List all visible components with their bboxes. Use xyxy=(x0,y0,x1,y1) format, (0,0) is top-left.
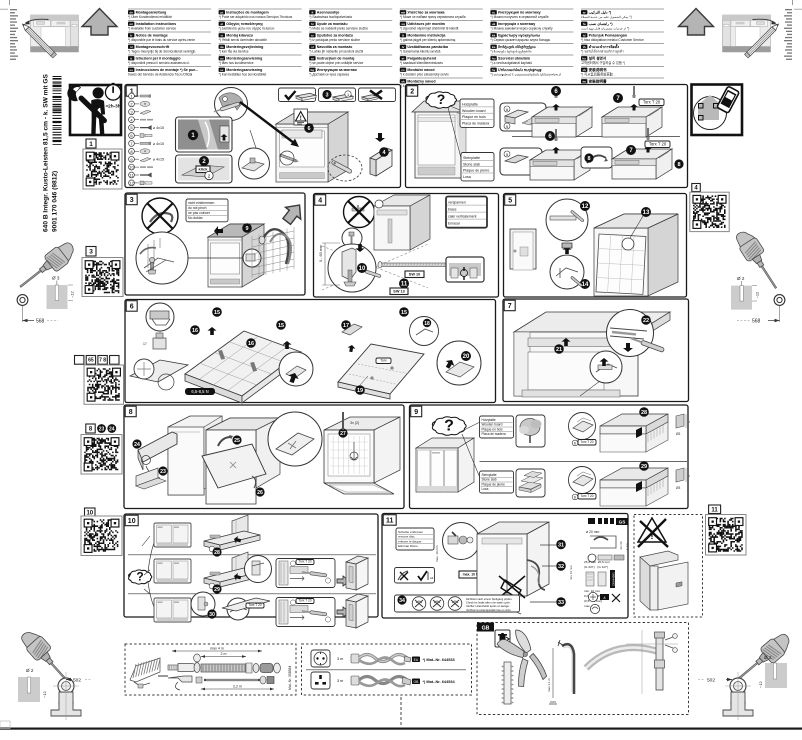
svg-text:از خدمات مشتریان قابل تهیه است: از خدمات مشتریان قابل تهیه است *) xyxy=(581,27,629,31)
svg-text:25,4 mm 20,6 mm: 25,4 mm 20,6 mm xyxy=(584,560,610,564)
svg-text:Holzplatte: Holzplatte xyxy=(482,418,496,422)
svg-text:kk: kk xyxy=(492,34,496,38)
svg-text:3: 3 xyxy=(325,93,328,99)
svg-text:21: 21 xyxy=(556,347,562,353)
svg-text:h: h xyxy=(688,420,690,424)
svg-text:*) a vevőszolgálatnál kapható: *) a vevőszolgálatnál kapható xyxy=(490,61,532,65)
svg-text:do not pinch: do not pinch xyxy=(188,206,207,210)
svg-text:No doblar: No doblar xyxy=(188,216,204,220)
svg-text:65: 65 xyxy=(88,358,94,364)
svg-text:et: et xyxy=(402,57,405,61)
svg-text:Istruzioni per il montaggio: Istruzioni per il montaggio xyxy=(136,57,182,61)
svg-text:nicht einklemmen: nicht einklemmen xyxy=(188,201,214,205)
svg-text:Stone slab: Stone slab xyxy=(482,478,497,482)
svg-text:16: 16 xyxy=(192,328,198,334)
svg-text:30: 30 xyxy=(209,612,215,618)
svg-text:3 m: 3 m xyxy=(337,657,343,661)
svg-text:8: 8 xyxy=(587,156,590,162)
svg-text:24: 24 xyxy=(134,442,140,448)
svg-text:Instruções de montagem: Instruções de montagem xyxy=(226,11,269,15)
svg-text:cs: cs xyxy=(401,68,405,72)
svg-text:5: 5 xyxy=(506,125,508,129)
svg-text:?: ? xyxy=(444,418,454,435)
svg-text:9: 9 xyxy=(245,226,248,232)
svg-text:*) Pode ser adquirido nos noss: *) Pode ser adquirido nos nossos Serviço… xyxy=(219,15,293,19)
svg-text:bg: bg xyxy=(311,68,315,72)
svg-text:ko: ko xyxy=(582,57,586,61)
svg-text:安裝說明書: 安裝說明書 xyxy=(589,79,607,84)
svg-text:1: 1 xyxy=(347,93,349,97)
svg-text:*) Доставя се чрез сервиза: *) Доставя се чрез сервиза xyxy=(309,73,349,77)
svg-text:4: 4 xyxy=(318,198,322,205)
svg-text:22: 22 xyxy=(643,318,649,324)
svg-text:sq: sq xyxy=(401,22,405,26)
svg-text:9001 170 046 (9812): 9001 170 046 (9812) xyxy=(52,171,59,232)
svg-text:mk: mk xyxy=(401,11,406,15)
svg-text:*) Можно получить в сервисной: *) Можно получить в сервисной службе xyxy=(490,15,549,19)
svg-text:enlever le disque: enlever le disque xyxy=(398,539,422,543)
svg-text:Plaque de pierre: Plaque de pierre xyxy=(463,169,489,173)
svg-text:31: 31 xyxy=(558,543,564,549)
svg-text:en: en xyxy=(129,22,133,26)
svg-text:Szerelési útmutató: Szerelési útmutató xyxy=(498,57,531,61)
svg-text:Holzplatte: Holzplatte xyxy=(462,103,478,107)
svg-text:7: 7 xyxy=(508,303,512,310)
svg-text:th: th xyxy=(583,45,586,49)
svg-text:lt: lt xyxy=(402,34,404,38)
svg-text:12: 12 xyxy=(582,204,589,210)
svg-text:12: 12 xyxy=(129,181,134,186)
svg-text:*) saadaval klienditeeninduses: *) saadaval klienditeeninduses xyxy=(400,61,443,65)
svg-text:Wooden board: Wooden board xyxy=(482,423,503,427)
svg-text:de: de xyxy=(129,11,133,15)
svg-text:hy: hy xyxy=(492,68,496,72)
svg-text:⌀ 4x15: ⌀ 4x15 xyxy=(153,126,164,130)
svg-text:~12: ~12 xyxy=(755,291,760,299)
svg-text:Ø3: Ø3 xyxy=(676,432,680,436)
svg-text:sl: sl xyxy=(311,45,314,49)
svg-text:Plaque en bois: Plaque en bois xyxy=(462,115,486,119)
svg-text:Stone slab: Stone slab xyxy=(463,162,480,166)
svg-text:sv: sv xyxy=(220,68,224,72)
svg-text:*) fåes hos kundeservice: *) fåes hos kundeservice xyxy=(219,61,254,65)
svg-text:Упатство за монтажа: Упатство за монтажа xyxy=(407,11,445,15)
svg-text:Verificar la estanqueidad tras: Verificar la estanqueidad tras un ciclo. xyxy=(466,608,512,612)
svg-text:Құрастыру нұсқаулығы: Құрастыру нұсқаулығы xyxy=(498,34,540,38)
svg-text:sk: sk xyxy=(401,80,405,84)
svg-text:Instrucciones de montaje *) Se: Instrucciones de montaje *) Se pue... xyxy=(136,68,199,72)
svg-text:Navodila za montažo: Navodila za montažo xyxy=(317,45,353,49)
svg-text:Steinplatte: Steinplatte xyxy=(463,156,480,160)
svg-text:Mat.-Nr. 358584: Mat.-Nr. 358584 xyxy=(288,666,292,690)
svg-text:el: el xyxy=(221,22,224,26)
svg-text:fi: fi xyxy=(311,11,313,15)
svg-text:*) ขอรับได้จากฝ่ายบริการลูกค้า: *) ขอรับได้จากฝ่ายบริการลูกค้า xyxy=(581,50,624,54)
svg-text:min. 10 mm: min. 10 mm xyxy=(569,565,573,580)
svg-text:Instrucţiuni de montaj: Instrucţiuni de montaj xyxy=(317,57,355,61)
svg-text:!: ! xyxy=(300,116,302,122)
svg-text:nl: nl xyxy=(130,45,133,49)
svg-text:Ø 2: Ø 2 xyxy=(764,655,772,660)
svg-text:*) Kan beställas hos servicest: *) Kan beställas hos servicestället xyxy=(219,73,267,77)
svg-text:2,2 m: 2,2 m xyxy=(233,685,242,689)
svg-text:*) iz postojala preko servisne: *) iz postojala preko servisne službe xyxy=(309,38,360,42)
svg-text:Upute za montažu: Upute za montažu xyxy=(317,22,348,26)
svg-text:Montaj kılavuzu: Montaj kılavuzu xyxy=(226,34,253,38)
svg-text:da: da xyxy=(220,45,224,49)
svg-text:no: no xyxy=(220,57,224,61)
svg-text:Udhëzues për montim: Udhëzues për montim xyxy=(407,22,445,26)
svg-text:33: 33 xyxy=(558,600,564,606)
svg-text:h: h xyxy=(688,474,690,478)
svg-text:*) Saatavissa huoltopalvelusta: *) Saatavissa huoltopalvelusta xyxy=(309,15,352,19)
svg-text:max. 10 mm: max. 10 mm xyxy=(435,545,439,562)
svg-text:⌀ 4x15: ⌀ 4x15 xyxy=(153,158,164,162)
svg-text:Torx T 20: Torx T 20 xyxy=(248,603,261,607)
svg-text:Torx T 20: Torx T 20 xyxy=(649,142,667,147)
svg-text:min 30: min 30 xyxy=(619,541,623,550)
svg-text:14: 14 xyxy=(582,282,589,288)
svg-text:Інструкція з монтажу: Інструкція з монтажу xyxy=(498,22,535,26)
svg-text:*) Може се набави преку сервис: *) Може се набави преку сервисната служб… xyxy=(400,15,466,19)
svg-text:ro: ro xyxy=(311,57,314,61)
svg-text:15: 15 xyxy=(278,323,284,329)
svg-text:it: it xyxy=(130,57,132,61)
svg-text:6,5-8,5 N: 6,5-8,5 N xyxy=(191,389,208,394)
svg-text:*) Yetkili servis üzerinden al: *) Yetkili servis üzerinden alınabilir xyxy=(219,38,268,42)
svg-text:max 4 m: max 4 m xyxy=(210,647,224,651)
svg-text:Losa: Losa xyxy=(463,175,471,179)
svg-text:*) kan fås via Service: *) kan fås via Service xyxy=(219,50,249,54)
svg-text:*) Lahko jih nabavite pri serv: *) Lahko jih nabavite pri servisni služb… xyxy=(309,50,363,54)
svg-text:13: 13 xyxy=(643,210,650,216)
svg-text:يمكن الحصول عليه من خدمة العمل: يمكن الحصول عليه من خدمة العملاء *) xyxy=(581,15,632,19)
svg-text:Monteringsvejledning: Monteringsvejledning xyxy=(226,45,263,49)
svg-text:es: es xyxy=(129,68,133,72)
svg-text:Plaque en bois: Plaque en bois xyxy=(482,427,503,431)
svg-text:⌀1: ⌀1 xyxy=(430,576,434,580)
svg-text:*) galima įsigyti per klientų: *) galima įsigyti per klientų aptarnavim… xyxy=(400,38,456,42)
svg-text:ka: ka xyxy=(492,45,496,49)
svg-text:23: 23 xyxy=(99,426,105,432)
svg-text:Plaque de pierre: Plaque de pierre xyxy=(482,482,506,486)
svg-text:*) disponible par le biais du: *) disponible par le biais du service ap… xyxy=(128,38,195,42)
svg-text:Torx T 20: Torx T 20 xyxy=(298,560,311,564)
svg-text:Ø3: Ø3 xyxy=(676,486,680,490)
svg-text:Paigaldusjuhend: Paigaldusjuhend xyxy=(407,57,436,61)
svg-text:*) Saņemama klientu servisā: *) Saņemama klientu servisā xyxy=(400,50,441,54)
svg-text:caler verticalement: caler verticalement xyxy=(448,215,477,219)
svg-text:fa: fa xyxy=(583,22,586,26)
svg-text:Scheibe entfernen: Scheibe entfernen xyxy=(398,530,423,534)
svg-text:max 1,1 m: max 1,1 m xyxy=(547,677,551,692)
svg-text:Montagevoorschrift: Montagevoorschrift xyxy=(136,45,170,49)
svg-text:id: id xyxy=(583,34,586,38)
svg-text:GS: GS xyxy=(619,520,626,525)
svg-text:11: 11 xyxy=(401,282,408,288)
svg-text:6: 6 xyxy=(506,108,508,112)
svg-text:Steinplatte: Steinplatte xyxy=(482,473,497,477)
svg-text:Ø 3: Ø 3 xyxy=(52,276,60,281)
svg-text:28: 28 xyxy=(641,410,647,416)
svg-text:*) Može se nabaviti preko serv: *) Može se nabaviti preko servisne služb… xyxy=(309,27,368,31)
svg-text:Monteringsanvisning: Monteringsanvisning xyxy=(226,57,262,61)
svg-text:2 m: 2 m xyxy=(221,652,227,656)
svg-text:6: 6 xyxy=(574,442,576,446)
svg-text:3: 3 xyxy=(89,249,93,256)
svg-text:*) Можна замовити через сервіс: *) Можна замовити через сервісну службу xyxy=(490,27,553,31)
svg-text:6: 6 xyxy=(130,304,134,311)
svg-text:zh: zh xyxy=(582,68,586,72)
svg-text:고객센터에서 구입하실 수 있음 *): 고객센터에서 구입하실 수 있음 *) xyxy=(581,60,625,65)
svg-text:SW 13: SW 13 xyxy=(393,290,404,294)
svg-text:Vérifier l étanchéité après un: Vérifier l étanchéité après un lavage. xyxy=(466,604,510,608)
svg-text:(G 3/4") (G 1/2"): (G 3/4") (G 1/2") xyxy=(584,565,608,569)
svg-text:Torx: Torx xyxy=(380,359,387,363)
svg-text:Notice de montage: Notice de montage xyxy=(136,34,168,38)
svg-text:15: 15 xyxy=(401,310,407,316)
svg-text:Montavimo instrukcija: Montavimo instrukcija xyxy=(407,34,446,38)
svg-text:GB: GB xyxy=(482,626,490,632)
svg-text:Dichtheit nach einem Spülgang: Dichtheit nach einem Spülgang prüfen. xyxy=(466,597,513,601)
svg-text:27: 27 xyxy=(340,431,346,437)
svg-text:remove disc: remove disc xyxy=(398,535,415,539)
svg-text:6: 6 xyxy=(574,496,576,500)
svg-text:klick: klick xyxy=(199,167,209,172)
svg-text:través del Servicio de Asisten: través del Servicio de Asistencia Técn./… xyxy=(128,73,193,77)
svg-text:Инструкция по монтажу: Инструкция по монтажу xyxy=(498,11,541,15)
svg-text:25: 25 xyxy=(234,438,240,444)
svg-text:Installation instructions: Installation instructions xyxy=(136,22,177,26)
svg-text:502: 502 xyxy=(73,678,81,684)
svg-text:Monteringsanvisning: Monteringsanvisning xyxy=(226,68,262,72)
svg-text:설치 설명서: 설치 설명서 xyxy=(589,56,607,61)
svg-text:Инструкция за монтаж: Инструкция за монтаж xyxy=(317,68,357,72)
svg-text:brace: brace xyxy=(448,208,457,212)
svg-text:34: 34 xyxy=(399,598,405,604)
svg-text:Eliminar Disco: Eliminar Disco xyxy=(398,544,418,548)
svg-text:≈2h-3h: ≈2h-3h xyxy=(106,103,121,108)
svg-text:10: 10 xyxy=(128,518,136,525)
svg-text:0 - 60 mm: 0 - 60 mm xyxy=(319,245,323,262)
svg-text:3: 3 xyxy=(130,197,134,204)
svg-text:lv: lv xyxy=(402,45,405,49)
svg-text:GB: GB xyxy=(414,680,420,684)
svg-text:*) მიიღება სერვის ცენტრში: *) მიიღება სერვის ცენტრში xyxy=(490,50,531,54)
svg-text:pt: pt xyxy=(220,11,223,15)
svg-text:568: 568 xyxy=(36,319,45,325)
svg-text:*) k dostání přes zákaznický s: *) k dostání přes zákaznický servis xyxy=(400,73,449,77)
svg-text:26: 26 xyxy=(257,490,263,496)
svg-text:ne pas coincer: ne pas coincer xyxy=(188,211,211,215)
svg-text:*) Mat.-Nr. 644533: *) Mat.-Nr. 644533 xyxy=(423,657,456,662)
svg-text:EU: EU xyxy=(414,658,419,662)
svg-text:ru: ru xyxy=(492,11,495,15)
svg-text:*) Διατίθενται μέσω του σέρβις: *) Διατίθενται μέσω του σέρβις πελατών xyxy=(219,27,275,31)
svg-text:Placa de madera: Placa de madera xyxy=(482,432,506,436)
svg-text:*) Сервис қызметі арқылы алуға: *) Сервис қызметі арқылы алуға болады xyxy=(490,38,550,42)
svg-text:Ø 2: Ø 2 xyxy=(26,668,34,673)
svg-text:⌀ 4x15: ⌀ 4x15 xyxy=(153,142,164,146)
svg-text:Asennusohje: Asennusohje xyxy=(317,11,340,15)
svg-text:23: 23 xyxy=(160,469,166,475)
svg-text:Check for leaks after one wash: Check for leaks after one wash cycle. xyxy=(466,601,511,605)
svg-text:3 m: 3 m xyxy=(337,679,343,683)
svg-text:7 8: 7 8 xyxy=(99,358,106,364)
svg-text:ø 20 mm: ø 20 mm xyxy=(586,530,600,534)
svg-text:Torx T 20: Torx T 20 xyxy=(643,100,661,105)
svg-text:Montageanleitung: Montageanleitung xyxy=(136,11,167,15)
svg-text:17: 17 xyxy=(143,342,147,346)
svg-text:*) Über Kundendienst erhältlic: *) Über Kundendienst erhältlich xyxy=(128,15,172,19)
svg-text:?: ? xyxy=(437,91,446,107)
svg-text:SW 10: SW 10 xyxy=(409,273,420,277)
svg-text:*) 可从售后服务处获取 .: *) 可从售后服务处获取 . xyxy=(581,72,615,77)
svg-text:28: 28 xyxy=(214,550,220,556)
svg-text:Wooden board: Wooden board xyxy=(462,109,486,113)
svg-text:Placa de madera: Placa de madera xyxy=(462,121,489,125)
svg-text:5: 5 xyxy=(508,198,512,205)
svg-text:10: 10 xyxy=(129,165,134,170)
svg-text:8: 8 xyxy=(129,409,133,416)
svg-text:29: 29 xyxy=(214,587,220,593)
svg-text:Torx T 20: Torx T 20 xyxy=(580,494,593,498)
svg-text:3x (2): 3x (2) xyxy=(350,421,359,425)
svg-text:*) Tegen meerprijs bij de Serv: *) Tegen meerprijs bij de Servicedienst … xyxy=(128,50,196,54)
svg-text:Torx T 20: Torx T 20 xyxy=(580,440,593,444)
svg-text:1: 1 xyxy=(89,141,93,148)
svg-text:*) ստացվում է սպասարկման կենտր: *) ստացվում է սպասարկման կենտրոնում xyxy=(490,73,560,77)
svg-text:Uputstvo za montažu: Uputstvo za montažu xyxy=(317,34,353,38)
svg-text:11: 11 xyxy=(386,518,394,525)
svg-text:*) bisa didapatkan melalui Cu: *) bisa didapatkan melalui Customer Serv… xyxy=(581,38,644,42)
svg-text:tw: tw xyxy=(582,80,586,84)
svg-text:Montážní návod: Montážní návod xyxy=(407,68,434,72)
svg-text:Ø 2: Ø 2 xyxy=(737,276,745,281)
svg-text:2: 2 xyxy=(410,89,414,96)
svg-text:568: 568 xyxy=(752,319,761,325)
svg-text:640 B Integr. Kusto-Leisten 81: 640 B Integr. Kusto-Leisten 81,5 cm - k.… xyxy=(43,73,50,232)
svg-text:8: 8 xyxy=(677,162,680,168)
svg-text:Montážny návod: Montážny návod xyxy=(407,80,435,84)
svg-text:5: 5 xyxy=(506,153,508,157)
svg-text:hu: hu xyxy=(492,57,496,61)
svg-text:*) Mat.-Nr. 644534: *) Mat.-Nr. 644534 xyxy=(423,679,456,684)
svg-text:20: 20 xyxy=(463,354,470,360)
svg-text:?: ? xyxy=(136,570,143,584)
svg-text:1,1 m: 1,1 m xyxy=(625,542,629,550)
svg-text:Uzstādīšanas pamācība: Uzstādīšanas pamācība xyxy=(407,45,449,49)
svg-text:Torx T 20: Torx T 20 xyxy=(298,599,311,603)
svg-text:*) disponibili presso il servi: *) disponibili presso il servizio assist… xyxy=(128,61,190,65)
svg-text:9: 9 xyxy=(414,409,418,416)
svg-text:Petunjuk Pemasangan: Petunjuk Pemasangan xyxy=(589,34,627,38)
svg-text:*) sigurohet nëpërmjet shërbim: *) sigurohet nëpërmjet shërbimit të klie… xyxy=(400,27,459,31)
svg-text:~12: ~12 xyxy=(70,290,75,298)
svg-text:19: 19 xyxy=(357,388,363,394)
svg-text:~12: ~12 xyxy=(42,690,47,698)
svg-text:24: 24 xyxy=(109,426,115,432)
svg-text:502: 502 xyxy=(707,678,715,684)
svg-text:29: 29 xyxy=(641,464,647,470)
svg-text:~12: ~12 xyxy=(758,680,763,688)
svg-text:verspannen: verspannen xyxy=(448,201,466,205)
svg-text:Enrasar: Enrasar xyxy=(448,222,461,226)
svg-text:安装说明书: 安装说明书 xyxy=(589,67,607,72)
svg-text:10: 10 xyxy=(359,266,366,272)
svg-text:*) Available from customer ser: *) Available from customer service xyxy=(128,27,176,31)
svg-text:18: 18 xyxy=(424,321,430,327)
svg-text:16: 16 xyxy=(248,341,254,347)
svg-text:Losa: Losa xyxy=(482,487,489,491)
svg-text:*) se poate obţine prin unităţ: *) se poate obţine prin unităţile servic… xyxy=(309,61,363,65)
svg-text:DIN44991: DIN44991 xyxy=(612,572,616,586)
svg-text:6: 6 xyxy=(307,126,310,132)
svg-text:uk: uk xyxy=(492,22,496,26)
svg-text:15: 15 xyxy=(214,310,220,316)
svg-text:Οδηγίες τοποθέτησης: Οδηγίες τοποθέτησης xyxy=(226,22,263,26)
svg-text:11: 11 xyxy=(711,507,718,513)
svg-text:32: 32 xyxy=(558,564,564,570)
